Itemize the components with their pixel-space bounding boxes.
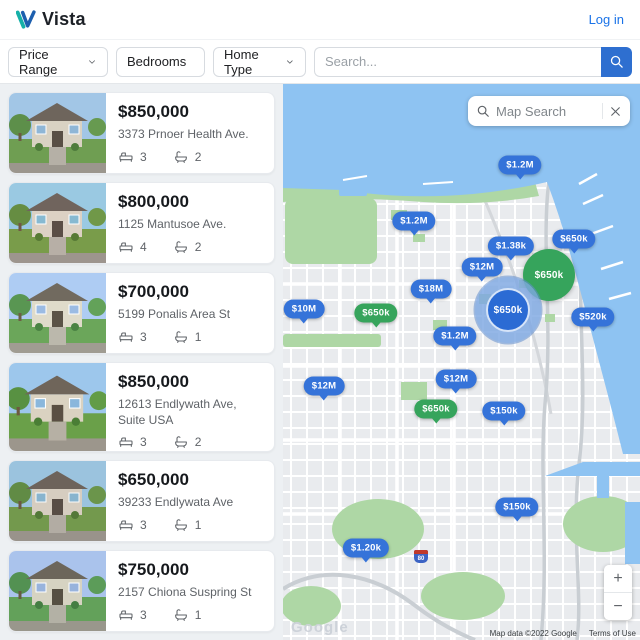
bath-icon [173, 607, 189, 623]
chevron-down-icon [285, 56, 295, 68]
baths-item: 2 [173, 239, 202, 255]
app-header: Vista Log in [0, 0, 640, 40]
listing-photo [9, 551, 106, 631]
bedrooms-dropdown[interactable]: Bedrooms [116, 47, 205, 77]
listing-card[interactable]: $850,000 3373 Prnoer Health Ave. 3 [8, 92, 275, 174]
listing-meta: 3 2 [118, 428, 262, 450]
listing-address: 3373 Prnoer Health Ave. [118, 126, 262, 142]
listing-meta: 3 1 [118, 511, 262, 533]
marker-price-label: $1.38k [496, 241, 526, 252]
listing-address: 12613 Endlywath Ave, Suite USA [118, 396, 262, 428]
listing-card[interactable]: $850,000 12613 Endlywath Ave, Suite USA … [8, 362, 275, 452]
map-price-marker[interactable]: $150k [495, 498, 538, 517]
map-price-marker[interactable]: $12M [462, 258, 503, 277]
bath-icon [173, 434, 189, 450]
beds-count: 3 [140, 150, 147, 164]
beds-item: 3 [118, 149, 147, 165]
map-price-marker[interactable]: $1.2M [498, 156, 541, 175]
search-button[interactable] [601, 47, 632, 77]
listing-meta: 3 2 [118, 143, 262, 165]
listing-details: $750,000 2157 Chiona Suspring St 3 [106, 551, 274, 631]
marker-price-label: $12M [470, 262, 495, 273]
price-range-label: Price Range [19, 47, 79, 77]
price-range-dropdown[interactable]: Price Range [8, 47, 108, 77]
listing-meta: 3 1 [118, 601, 262, 623]
bath-icon [173, 239, 189, 255]
map-price-marker[interactable]: $650k [552, 230, 595, 249]
brand-logo: Vista [16, 9, 86, 30]
baths-count: 2 [195, 150, 202, 164]
chevron-down-icon [87, 56, 97, 68]
beds-item: 3 [118, 607, 147, 623]
listing-price: $800,000 [118, 192, 262, 212]
login-link[interactable]: Log in [589, 12, 624, 27]
marker-price-label: $650k [362, 308, 389, 319]
marker-price-label: $1.2M [400, 216, 427, 227]
baths-item: 1 [173, 517, 202, 533]
beds-count: 3 [140, 608, 147, 622]
beds-count: 4 [140, 240, 147, 254]
listing-address: 1125 Mantusoe Ave. [118, 216, 262, 232]
listings: $850,000 3373 Prnoer Health Ave. 3 [0, 84, 283, 640]
home-type-label: Home Type [224, 47, 277, 77]
beds-item: 3 [118, 434, 147, 450]
marker-price-label: $650k [422, 404, 449, 415]
beds-count: 3 [140, 330, 147, 344]
marker-price-label: $150k [503, 502, 530, 513]
marker-price-label: $12M [312, 381, 337, 392]
terms-of-use-link[interactable]: Terms of Use [589, 629, 636, 638]
listing-details: $850,000 3373 Prnoer Health Ave. 3 [106, 93, 274, 173]
listing-meta: 3 1 [118, 323, 262, 345]
map-view[interactable]: $1.2M$1.2M$650k$1.38k$12M$650k$18M$10M$6… [283, 84, 640, 640]
map-price-marker[interactable]: $10M [284, 300, 325, 319]
home-type-dropdown[interactable]: Home Type [213, 47, 306, 77]
listing-details: $850,000 12613 Endlywath Ave, Suite USA … [106, 363, 274, 451]
brand-name: Vista [42, 9, 86, 30]
listing-details: $800,000 1125 Mantusoe Ave. 4 [106, 183, 274, 263]
beds-count: 3 [140, 435, 147, 449]
map-price-marker[interactable]: $650k [523, 249, 575, 301]
listing-meta: 4 2 [118, 233, 262, 255]
zoom-out-button[interactable]: − [604, 593, 632, 620]
map-price-marker[interactable]: $1.2M [392, 212, 435, 231]
listing-price: $850,000 [118, 102, 262, 122]
baths-count: 1 [195, 608, 202, 622]
marker-price-label: $650k [535, 270, 564, 281]
listing-photo [9, 93, 106, 173]
baths-item: 2 [173, 149, 202, 165]
baths-item: 2 [173, 434, 202, 450]
listing-photo [9, 363, 106, 451]
marker-price-label: $520k [579, 312, 606, 323]
marker-price-label: $650k [560, 234, 587, 245]
listing-price: $700,000 [118, 282, 262, 302]
marker-price-label: $150k [490, 406, 517, 417]
baths-count: 2 [195, 240, 202, 254]
listing-card[interactable]: $800,000 1125 Mantusoe Ave. 4 [8, 182, 275, 264]
map-price-marker[interactable]: $650k [486, 288, 530, 332]
divider [602, 103, 603, 119]
bed-icon [118, 434, 134, 450]
listing-card[interactable]: $750,000 2157 Chiona Suspring St 3 [8, 550, 275, 632]
marker-price-label: $1.20k [351, 543, 381, 554]
search-icon [476, 104, 490, 118]
bed-icon [118, 329, 134, 345]
baths-count: 2 [195, 435, 202, 449]
baths-count: 1 [195, 518, 202, 532]
map-price-marker[interactable]: $12M [436, 370, 477, 389]
zoom-in-button[interactable]: + [604, 565, 632, 592]
map-attribution: Map data ©2022 Google Terms of Use [490, 629, 636, 638]
beds-count: 3 [140, 518, 147, 532]
beds-item: 3 [118, 329, 147, 345]
bedrooms-label: Bedrooms [127, 54, 186, 69]
baths-item: 1 [173, 329, 202, 345]
map-price-marker[interactable]: $650k [414, 400, 457, 419]
map-price-marker[interactable]: $520k [571, 308, 614, 327]
filter-bar: Price Range Bedrooms Home Type [0, 40, 640, 84]
baths-item: 1 [173, 607, 202, 623]
map-price-marker[interactable]: $1.38k [488, 237, 534, 256]
marker-price-label: $1.2M [441, 331, 468, 342]
google-logo: Google [291, 619, 349, 636]
search-icon [609, 54, 624, 69]
map-price-marker[interactable]: $12M [304, 377, 345, 396]
vista-logo-icon [16, 10, 36, 30]
map-price-marker[interactable]: $650k [354, 304, 397, 323]
search-input[interactable] [314, 47, 601, 77]
marker-price-label: $10M [292, 304, 317, 315]
main-content: $850,000 3373 Prnoer Health Ave. 3 [0, 84, 640, 640]
listing-price: $850,000 [118, 372, 262, 392]
marker-price-label: $18M [419, 284, 444, 295]
map-search-box [468, 96, 630, 126]
listing-photo [9, 273, 106, 353]
listing-photo [9, 183, 106, 263]
bed-icon [118, 239, 134, 255]
listing-price: $750,000 [118, 560, 262, 580]
baths-count: 1 [195, 330, 202, 344]
listing-price: $650,000 [118, 470, 262, 490]
map-markers: $1.2M$1.2M$650k$1.38k$12M$650k$18M$10M$6… [283, 84, 640, 640]
map-price-marker[interactable]: $1.2M [433, 327, 476, 346]
map-search-input[interactable] [496, 104, 596, 119]
close-icon[interactable] [609, 105, 622, 118]
listing-address: 2157 Chiona Suspring St [118, 584, 262, 600]
bath-icon [173, 149, 189, 165]
listing-card[interactable]: $700,000 5199 Ponalis Area St 3 [8, 272, 275, 354]
map-price-marker[interactable]: $1.20k [343, 539, 389, 558]
marker-price-label: $1.2M [506, 160, 533, 171]
search-group [314, 47, 632, 77]
bath-icon [173, 329, 189, 345]
map-price-marker[interactable]: $18M [411, 280, 452, 299]
map-data-credit: Map data ©2022 Google [490, 629, 577, 638]
beds-item: 4 [118, 239, 147, 255]
marker-price-label: $12M [444, 374, 469, 385]
bath-icon [173, 517, 189, 533]
listing-photo [9, 461, 106, 541]
map-price-marker[interactable]: $150k [482, 402, 525, 421]
marker-price-label: $650k [494, 305, 523, 316]
listing-details: $650,000 39233 Endlywata Ave 3 [106, 461, 274, 541]
listing-card[interactable]: $650,000 39233 Endlywata Ave 3 [8, 460, 275, 542]
map-zoom-control: + − [604, 565, 632, 620]
bed-icon [118, 517, 134, 533]
listing-address: 39233 Endlywata Ave [118, 494, 262, 510]
listing-address: 5199 Ponalis Area St [118, 306, 262, 322]
bed-icon [118, 149, 134, 165]
bed-icon [118, 607, 134, 623]
beds-item: 3 [118, 517, 147, 533]
listing-details: $700,000 5199 Ponalis Area St 3 [106, 273, 274, 353]
